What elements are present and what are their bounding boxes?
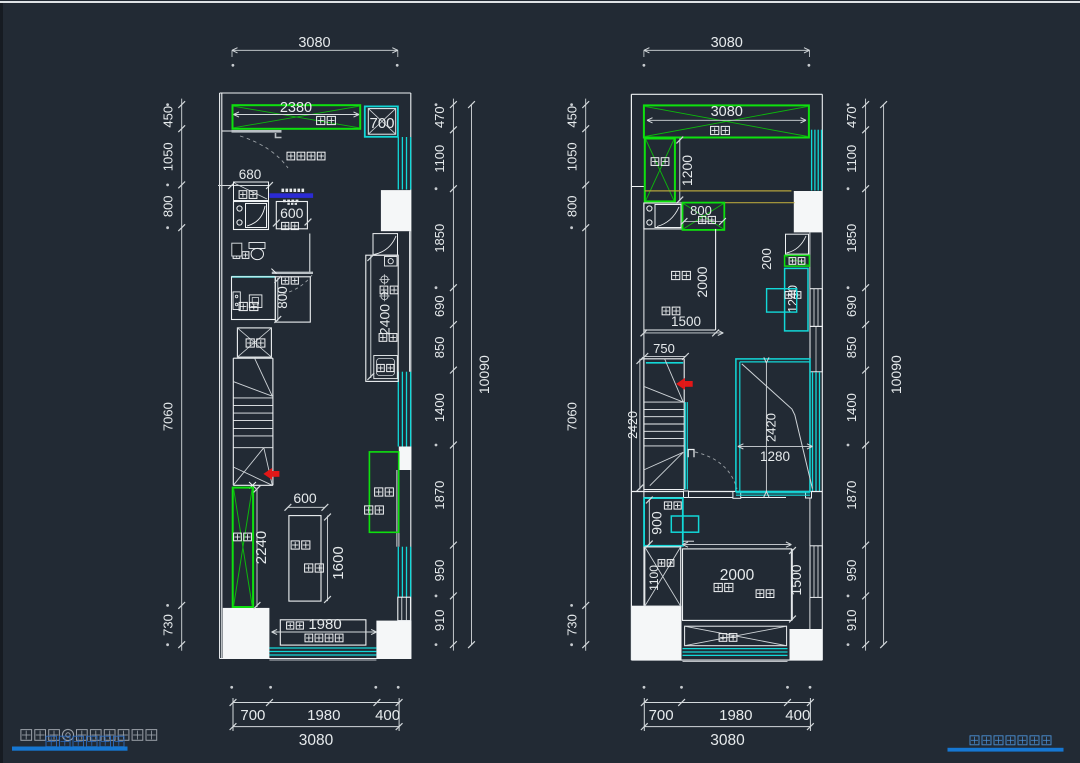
svg-text:1500: 1500: [671, 314, 701, 329]
svg-text:950: 950: [432, 560, 447, 582]
svg-text:470: 470: [432, 106, 447, 128]
svg-text:1980: 1980: [307, 707, 340, 724]
svg-text:800: 800: [160, 195, 175, 217]
svg-text:1980: 1980: [719, 707, 752, 724]
svg-text:450: 450: [160, 106, 175, 128]
svg-text:3080: 3080: [711, 35, 743, 51]
svg-text:1050: 1050: [160, 142, 175, 171]
svg-text:400: 400: [785, 707, 810, 724]
svg-text:2380: 2380: [280, 100, 312, 116]
svg-text:1850: 1850: [432, 224, 447, 253]
svg-text:1200: 1200: [679, 155, 695, 186]
svg-text:800: 800: [690, 203, 712, 218]
svg-text:1100: 1100: [647, 565, 661, 591]
svg-text:2000: 2000: [694, 266, 710, 297]
svg-text:690: 690: [844, 295, 859, 317]
svg-text:2240: 2240: [253, 531, 270, 564]
svg-text:800: 800: [564, 195, 579, 217]
svg-text:1100: 1100: [844, 145, 859, 173]
svg-text:1500: 1500: [788, 564, 804, 595]
svg-text:900: 900: [649, 511, 665, 535]
svg-text:1870: 1870: [844, 481, 859, 510]
svg-text:7060: 7060: [564, 402, 579, 431]
svg-text:730: 730: [160, 614, 175, 636]
svg-text:3080: 3080: [710, 732, 745, 749]
svg-text:450: 450: [564, 106, 579, 128]
svg-text:750: 750: [653, 341, 675, 356]
svg-text:910: 910: [432, 609, 447, 631]
svg-text:910: 910: [844, 609, 859, 631]
svg-text:1100: 1100: [432, 145, 447, 173]
svg-text:1400: 1400: [432, 393, 447, 422]
svg-text:3080: 3080: [711, 104, 743, 120]
svg-text:700: 700: [369, 115, 394, 132]
svg-text:2420: 2420: [764, 413, 779, 442]
svg-text:2420: 2420: [626, 411, 640, 439]
svg-text:700: 700: [649, 707, 674, 724]
svg-text:2000: 2000: [720, 567, 755, 584]
svg-text:200: 200: [759, 248, 774, 270]
svg-text:600: 600: [280, 205, 304, 221]
svg-text:3080: 3080: [298, 35, 330, 51]
svg-text:1980: 1980: [308, 616, 341, 633]
svg-text:400: 400: [375, 707, 400, 724]
svg-text:470: 470: [844, 106, 859, 128]
svg-text:1600: 1600: [330, 546, 347, 579]
svg-text:1850: 1850: [844, 224, 859, 253]
svg-text:680: 680: [239, 167, 262, 182]
svg-text:3080: 3080: [299, 732, 334, 749]
svg-text:850: 850: [432, 337, 447, 359]
svg-text:700: 700: [240, 707, 265, 724]
svg-text:730: 730: [564, 614, 579, 636]
svg-text:1050: 1050: [564, 142, 579, 171]
svg-text:690: 690: [432, 295, 447, 317]
svg-text:10090: 10090: [476, 355, 492, 394]
svg-text:7060: 7060: [160, 402, 175, 431]
svg-text:1870: 1870: [432, 481, 447, 510]
svg-text:600: 600: [293, 490, 317, 506]
svg-text:1280: 1280: [760, 449, 790, 464]
svg-text:10090: 10090: [888, 355, 904, 394]
svg-text:850: 850: [844, 337, 859, 359]
svg-text:2400: 2400: [377, 304, 393, 335]
svg-text:950: 950: [844, 560, 859, 582]
svg-text:800: 800: [275, 286, 290, 309]
svg-text:1400: 1400: [844, 393, 859, 422]
